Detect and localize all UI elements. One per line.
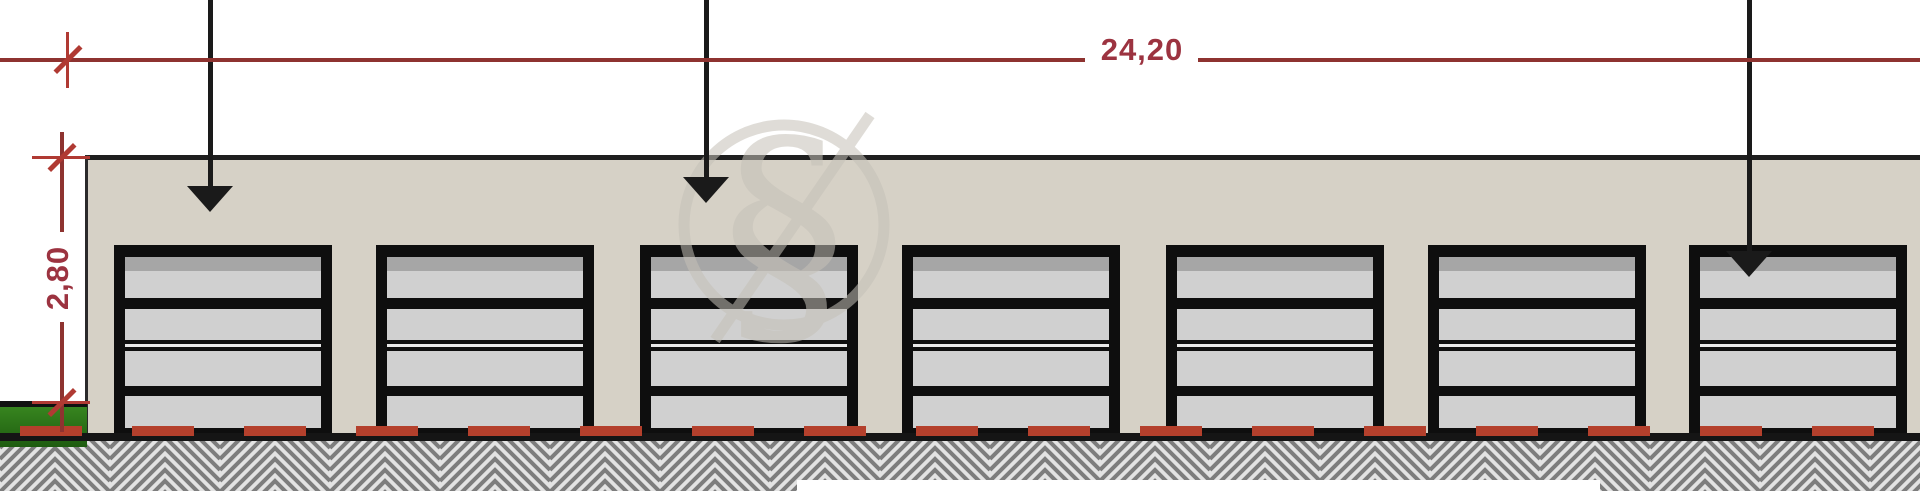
door-panel-3 (1177, 351, 1373, 386)
door-panel-1 (125, 257, 321, 298)
door-panel-3 (1700, 351, 1896, 386)
door-panel-4 (913, 396, 1109, 428)
leader-arrow-line (704, 0, 709, 181)
door-panel-2 (1439, 309, 1635, 340)
garage-door (1166, 245, 1384, 438)
arrow-head-icon (1726, 251, 1772, 277)
door-panel-4 (1439, 396, 1635, 428)
dimension-extension-line (66, 32, 69, 88)
door-panel-1 (387, 257, 583, 298)
door-panel-3 (1439, 351, 1635, 386)
door-rail-joint (125, 344, 321, 347)
door-panel-1 (1439, 257, 1635, 298)
door-rail-joint (387, 344, 583, 347)
door-panel-4 (1700, 396, 1896, 428)
arrow-head-icon (187, 186, 233, 212)
watermark-logo: § (645, 85, 945, 385)
arrow-head-icon (683, 177, 729, 203)
width-dimension-label: 24,20 (1086, 32, 1198, 68)
dimension-extension-line (32, 156, 90, 159)
garage-door (1428, 245, 1646, 438)
door-panel-4 (1177, 396, 1373, 428)
door-panel-3 (387, 351, 583, 386)
leader-arrow-line (208, 0, 213, 190)
door-panel-2 (1177, 309, 1373, 340)
elevation-drawing: 24,20 2,80 § (0, 0, 1920, 491)
door-rail-joint (1177, 344, 1373, 347)
door-rail-joint (1700, 344, 1896, 347)
door-panel-4 (125, 396, 321, 428)
door-panel-2 (125, 309, 321, 340)
door-panel-3 (125, 351, 321, 386)
watermark-glyph-icon: § (722, 88, 847, 379)
height-dimension-label: 2,80 (40, 228, 76, 328)
door-rail-joint (1439, 344, 1635, 347)
door-panel-1 (1177, 257, 1373, 298)
door-panel-4 (651, 396, 847, 428)
garage-door (1689, 245, 1907, 438)
door-panel-4 (387, 396, 583, 428)
garage-door (376, 245, 594, 438)
bottom-white-box (797, 480, 1600, 491)
door-panel-shadow (1177, 257, 1373, 271)
height-dimension-line (60, 132, 64, 232)
door-panel-shadow (387, 257, 583, 271)
door-panel-2 (387, 309, 583, 340)
door-panel-2 (1700, 309, 1896, 340)
garage-door (114, 245, 332, 438)
door-panel-shadow (125, 257, 321, 271)
height-dimension-line (60, 322, 64, 432)
dimension-extension-line (32, 401, 90, 404)
width-dimension-line (0, 58, 1085, 62)
leader-arrow-line (1747, 0, 1752, 255)
facade-left-edge (85, 155, 88, 441)
door-panel-shadow (1439, 257, 1635, 271)
width-dimension-line (1198, 58, 1920, 62)
ground-red-dashed-line (20, 426, 1920, 436)
